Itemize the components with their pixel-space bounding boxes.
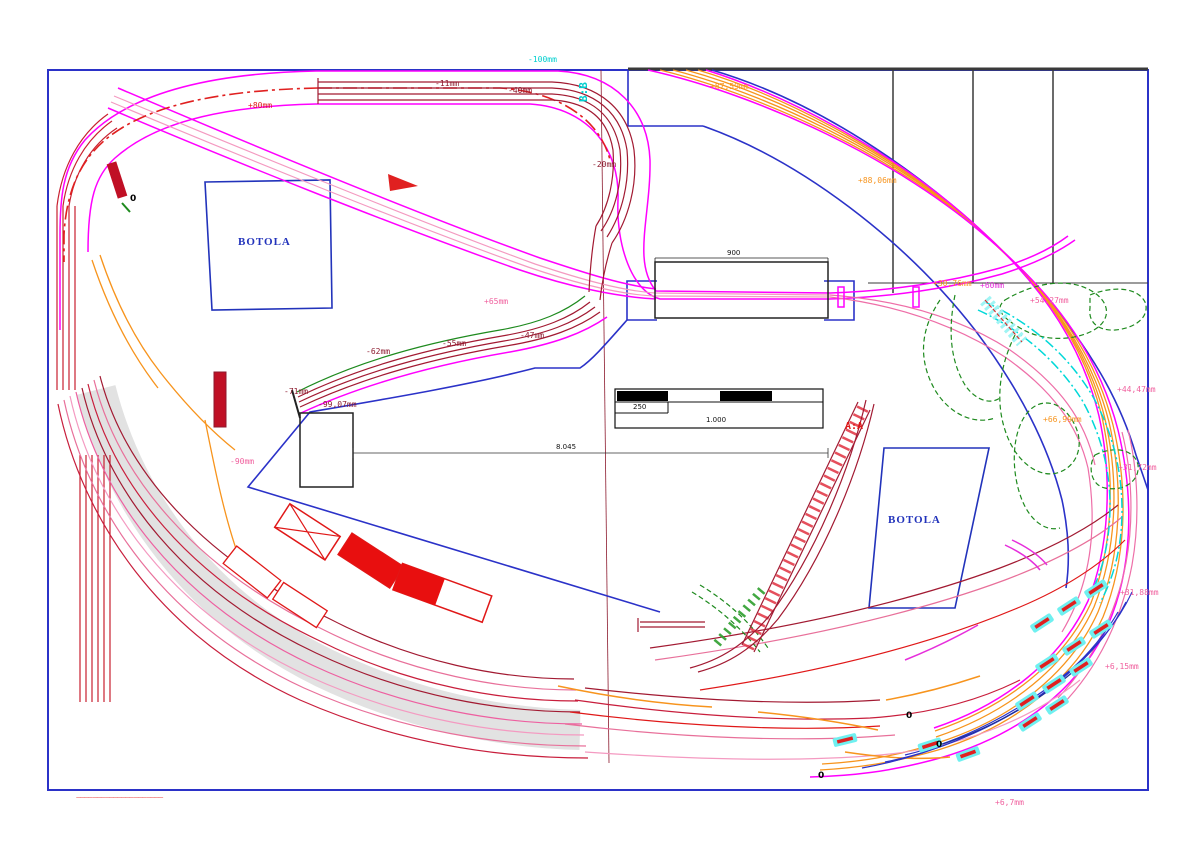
section-label-bb: B:B (577, 82, 590, 102)
elev-label-plus6-15: +6,15mm (1105, 662, 1139, 671)
botola-left-label: BOTOLA (238, 236, 291, 248)
elev-label-minus55: -55mm (442, 339, 466, 348)
elev-label-plus54-27: +54,27mm (1030, 296, 1069, 305)
magenta-mainline (60, 71, 1075, 330)
elev-label-plus6-7: +6,7mm (995, 798, 1024, 807)
bridge-width-dim: 900 (727, 249, 740, 257)
gray-staging-band (96, 390, 580, 730)
elev-label-plus44-47: +44,47mm (1117, 385, 1156, 394)
elev-label-plus66-99: +66,99mm (1043, 415, 1082, 424)
elev-label-minus20: -20mm (592, 160, 616, 169)
bottom-yard-tracks (558, 618, 1080, 759)
top-yard-tracks (318, 78, 635, 300)
zero-marker: 0 (130, 194, 136, 204)
cyan-bridge (985, 300, 1022, 342)
elev-label-plus80: +80mm (248, 101, 272, 110)
zero-marker: 0 (936, 740, 942, 750)
red-dashdot-track (64, 88, 610, 262)
elev-label-minus100: -100mm (528, 55, 557, 64)
track-plan-page: +80mm -11mm -40mm -20mm -100mm B:B +87,5… (0, 0, 1191, 842)
botola-right-label: BOTOLA (888, 514, 941, 526)
elev-label-minus11: -11mm (435, 79, 459, 88)
elev-label-plus65: +65mm (484, 297, 508, 306)
section-label-aa: A:A (845, 421, 863, 432)
elev-label-minus99-07: -99,07mm (318, 400, 357, 409)
zero-marker: 0 (818, 771, 824, 781)
small-building (300, 413, 353, 487)
elev-label-plus87-59: +87,59mm (710, 82, 749, 91)
elev-label-minus62: -62mm (366, 347, 390, 356)
scale-total-dim: 1.000 (706, 416, 726, 424)
bridge-structure (655, 258, 828, 318)
elev-label-plus31-88: +31,88mm (1120, 588, 1159, 597)
scale-segment-dim: 250 (633, 403, 646, 411)
section-line-bb (601, 70, 609, 763)
elev-label-minus47: -47mm (520, 331, 544, 340)
elev-label-minus71: -71mm (284, 387, 308, 396)
elev-label-plus31-72: +31,72mm (1118, 463, 1157, 472)
staging-fan-tracks (58, 376, 588, 758)
layout-length-dim: 8.045 (556, 443, 576, 451)
elev-label-plus60: +60mm (980, 281, 1004, 290)
diagonal-inner-tracks (111, 96, 830, 297)
elev-label-plus88-06: +88,06mm (858, 176, 897, 185)
dimension-line (353, 448, 828, 458)
footer-note: ———— ——— ——————— ——— ———— (76, 795, 162, 801)
section-aa-ramp (690, 400, 874, 672)
elev-label-plus30-76: +30,76mm (933, 279, 972, 288)
zero-marker: 0 (906, 711, 912, 721)
misc-marks (122, 203, 130, 212)
elev-label-minus90: -90mm (230, 457, 254, 466)
track-plan-canvas (0, 0, 1191, 842)
elev-label-minus40: -40mm (508, 86, 532, 95)
